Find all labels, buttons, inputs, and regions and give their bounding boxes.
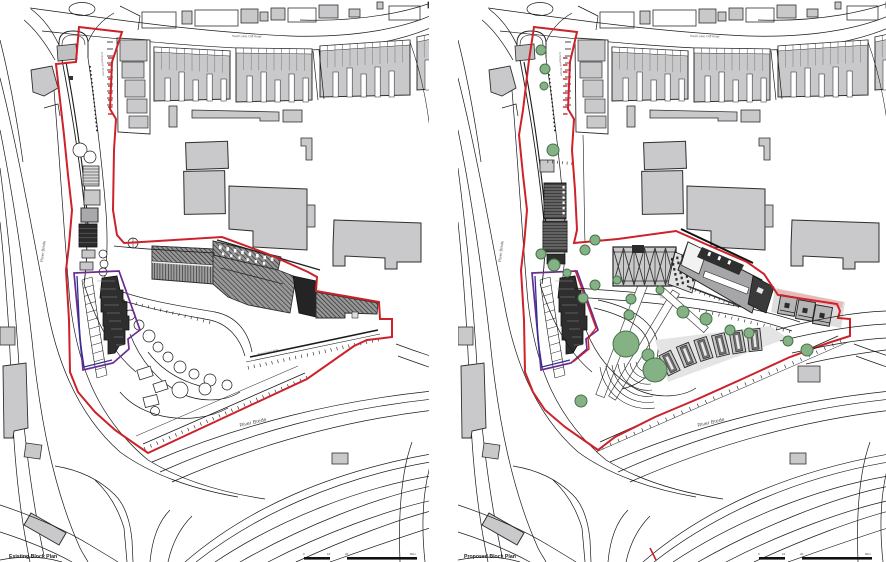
svg-text:10: 10 — [327, 552, 331, 556]
svg-text:20: 20 — [800, 552, 804, 556]
svg-text:50m: 50m — [865, 552, 871, 556]
svg-text:10: 10 — [782, 552, 786, 556]
svg-text:50m: 50m — [410, 552, 416, 556]
svg-text:20: 20 — [345, 552, 349, 556]
svg-text:Existing Block Plan: Existing Block Plan — [9, 554, 57, 560]
svg-text:Proposed Block Plan: Proposed Block Plan — [464, 554, 516, 560]
